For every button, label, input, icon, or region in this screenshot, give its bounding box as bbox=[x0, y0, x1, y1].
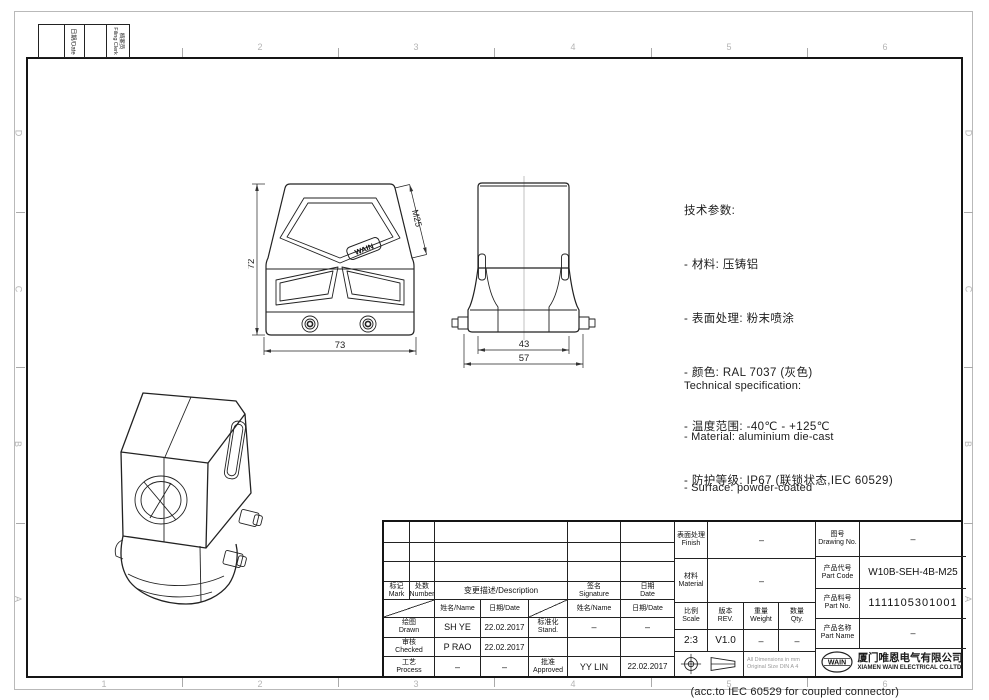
zone-tick bbox=[964, 212, 973, 213]
company-name-en: XIAMEN WAIN ELECTRICAL CO.LTD bbox=[858, 664, 963, 672]
zone-number: 4 bbox=[562, 679, 584, 689]
zone-number: 2 bbox=[249, 42, 271, 52]
zone-letter: B bbox=[13, 441, 23, 447]
spec-en-title: Technical specification: bbox=[684, 378, 899, 395]
row-checked: 审核Checked P RAO 22.02.2017 bbox=[384, 637, 674, 657]
zone-tick bbox=[494, 48, 495, 57]
process-date: – bbox=[502, 662, 507, 672]
scale-value-row: 2:3 V1.0 – – bbox=[675, 629, 815, 652]
approved-date: 22.02.2017 bbox=[627, 662, 667, 671]
zone-tick bbox=[807, 48, 808, 57]
zone-number: 5 bbox=[718, 42, 740, 52]
part-name-value: – bbox=[910, 628, 915, 638]
front-view: WAIN 72 73 M25 bbox=[248, 172, 438, 372]
filing-clerk-label: 档案员 Filing Clerk bbox=[112, 27, 124, 55]
zone-number: 6 bbox=[874, 42, 896, 52]
row-drawn: 绘图Drawn SH YE 22.02.2017 标准化Stand. – – bbox=[384, 617, 674, 637]
zone-tick bbox=[964, 367, 973, 368]
revision-subheader-row: 姓名/Name 日期/Date 姓名/Name 日期/Date bbox=[384, 599, 674, 617]
part-no-row: 产品料号Part No. 1111105301001 bbox=[816, 588, 966, 618]
part-code-row: 产品代号Part Code W10B-SEH-4B-M25 bbox=[816, 556, 966, 587]
projection-target-icon bbox=[680, 653, 702, 675]
dim-outer-label: 57 bbox=[519, 353, 530, 364]
zone-letter: D bbox=[963, 130, 973, 137]
stand-date: – bbox=[645, 622, 650, 632]
scale-value: 2:3 bbox=[684, 635, 698, 646]
wain-badge: WAIN bbox=[346, 236, 382, 260]
dim-height-label: 72 bbox=[248, 259, 257, 270]
drawn-date: 22.02.2017 bbox=[484, 623, 524, 632]
title-block: 标记Mark 处数Number 变更描述/Description 签名Signa… bbox=[382, 520, 963, 678]
drawn-name: SH YE bbox=[444, 622, 471, 632]
weight-value: – bbox=[758, 636, 763, 646]
wain-logo-icon: WAIN bbox=[820, 650, 854, 674]
part-code-value: W10B-SEH-4B-M25 bbox=[868, 567, 957, 578]
iso-view bbox=[92, 378, 312, 633]
zone-number: 3 bbox=[405, 679, 427, 689]
zone-number: 3 bbox=[405, 42, 427, 52]
row-process: 工艺Process – – 批准Approved YY LIN 22.02.20… bbox=[384, 656, 674, 676]
zone-number: 4 bbox=[562, 42, 584, 52]
zone-tick bbox=[182, 678, 183, 687]
revision-header-row: 标记Mark 处数Number 变更描述/Description 签名Signa… bbox=[384, 581, 674, 600]
zone-tick bbox=[338, 678, 339, 687]
company-row: WAIN 厦门唯恩电气有限公司 XIAMEN WAIN ELECTRICAL C… bbox=[816, 648, 966, 676]
rev-value: V1.0 bbox=[715, 635, 736, 646]
side-view: 43 57 bbox=[450, 168, 610, 378]
process-name: – bbox=[455, 662, 460, 672]
zone-tick bbox=[651, 678, 652, 687]
zone-tick bbox=[16, 523, 25, 524]
zone-number: 2 bbox=[249, 679, 271, 689]
approved-name: YY LIN bbox=[580, 662, 608, 672]
zone-tick bbox=[651, 48, 652, 57]
zone-tick bbox=[16, 212, 25, 213]
checked-name: P RAO bbox=[444, 642, 472, 652]
drawing-no-row: 图号Drawing No. – bbox=[816, 522, 966, 556]
zone-letter: B bbox=[963, 441, 973, 447]
zone-tick bbox=[182, 48, 183, 57]
projection-cone-icon bbox=[708, 653, 738, 675]
filing-blank-cell bbox=[84, 25, 106, 57]
checked-date: 22.02.2017 bbox=[484, 643, 524, 652]
filing-date-label: 日期/Date bbox=[70, 28, 79, 54]
dim-width-label: 73 bbox=[335, 340, 346, 351]
material-row: 材料Material – bbox=[675, 558, 815, 602]
filing-signature-cell bbox=[39, 25, 64, 57]
zone-letter: A bbox=[13, 596, 23, 602]
material-value: – bbox=[759, 576, 764, 586]
zone-tick bbox=[338, 48, 339, 57]
svg-text:WAIN: WAIN bbox=[827, 660, 845, 667]
filing-table: 日期/Date 档案员 Filing Clerk bbox=[38, 24, 130, 58]
part-name-row: 产品名称Part Name – bbox=[816, 618, 966, 647]
info-table: 表面处理Finish – 材料Material – 比例Scale 版本REV.… bbox=[674, 522, 965, 676]
spec-cn-title: 技术参数: bbox=[684, 202, 893, 220]
zone-tick bbox=[16, 367, 25, 368]
company-name-cn: 厦门唯恩电气有限公司 bbox=[858, 653, 963, 664]
symbols-row: All Dimensions in mm Original Size DIN A… bbox=[675, 651, 815, 676]
zone-number: 1 bbox=[93, 679, 115, 689]
scale-header-row: 比例Scale 版本REV. 重量Weight 数量Qty. bbox=[675, 602, 815, 628]
zone-letter: C bbox=[963, 286, 973, 293]
qty-value: – bbox=[794, 636, 799, 646]
dimension-notes: All Dimensions in mm Original Size DIN A… bbox=[743, 652, 815, 676]
filing-clerk-cell: 档案员 Filing Clerk bbox=[106, 25, 129, 57]
stand-name: – bbox=[591, 622, 596, 632]
finish-row: 表面处理Finish – bbox=[675, 522, 815, 558]
zone-letter: D bbox=[13, 130, 23, 137]
drawing-no-value: – bbox=[910, 534, 915, 544]
dim-thread-label: M25 bbox=[410, 209, 424, 228]
zone-tick bbox=[494, 678, 495, 687]
dim-inner-label: 43 bbox=[519, 339, 530, 350]
finish-value: – bbox=[759, 535, 764, 545]
revision-table: 标记Mark 处数Number 变更描述/Description 签名Signa… bbox=[384, 522, 674, 676]
zone-letter: C bbox=[13, 286, 23, 293]
engineering-drawing-sheet: 1 2 3 4 5 6 1 2 3 4 5 6 D C B A D C B A … bbox=[0, 0, 989, 700]
filing-date-cell: 日期/Date bbox=[64, 25, 84, 57]
part-no-value: 1111105301001 bbox=[868, 597, 957, 609]
